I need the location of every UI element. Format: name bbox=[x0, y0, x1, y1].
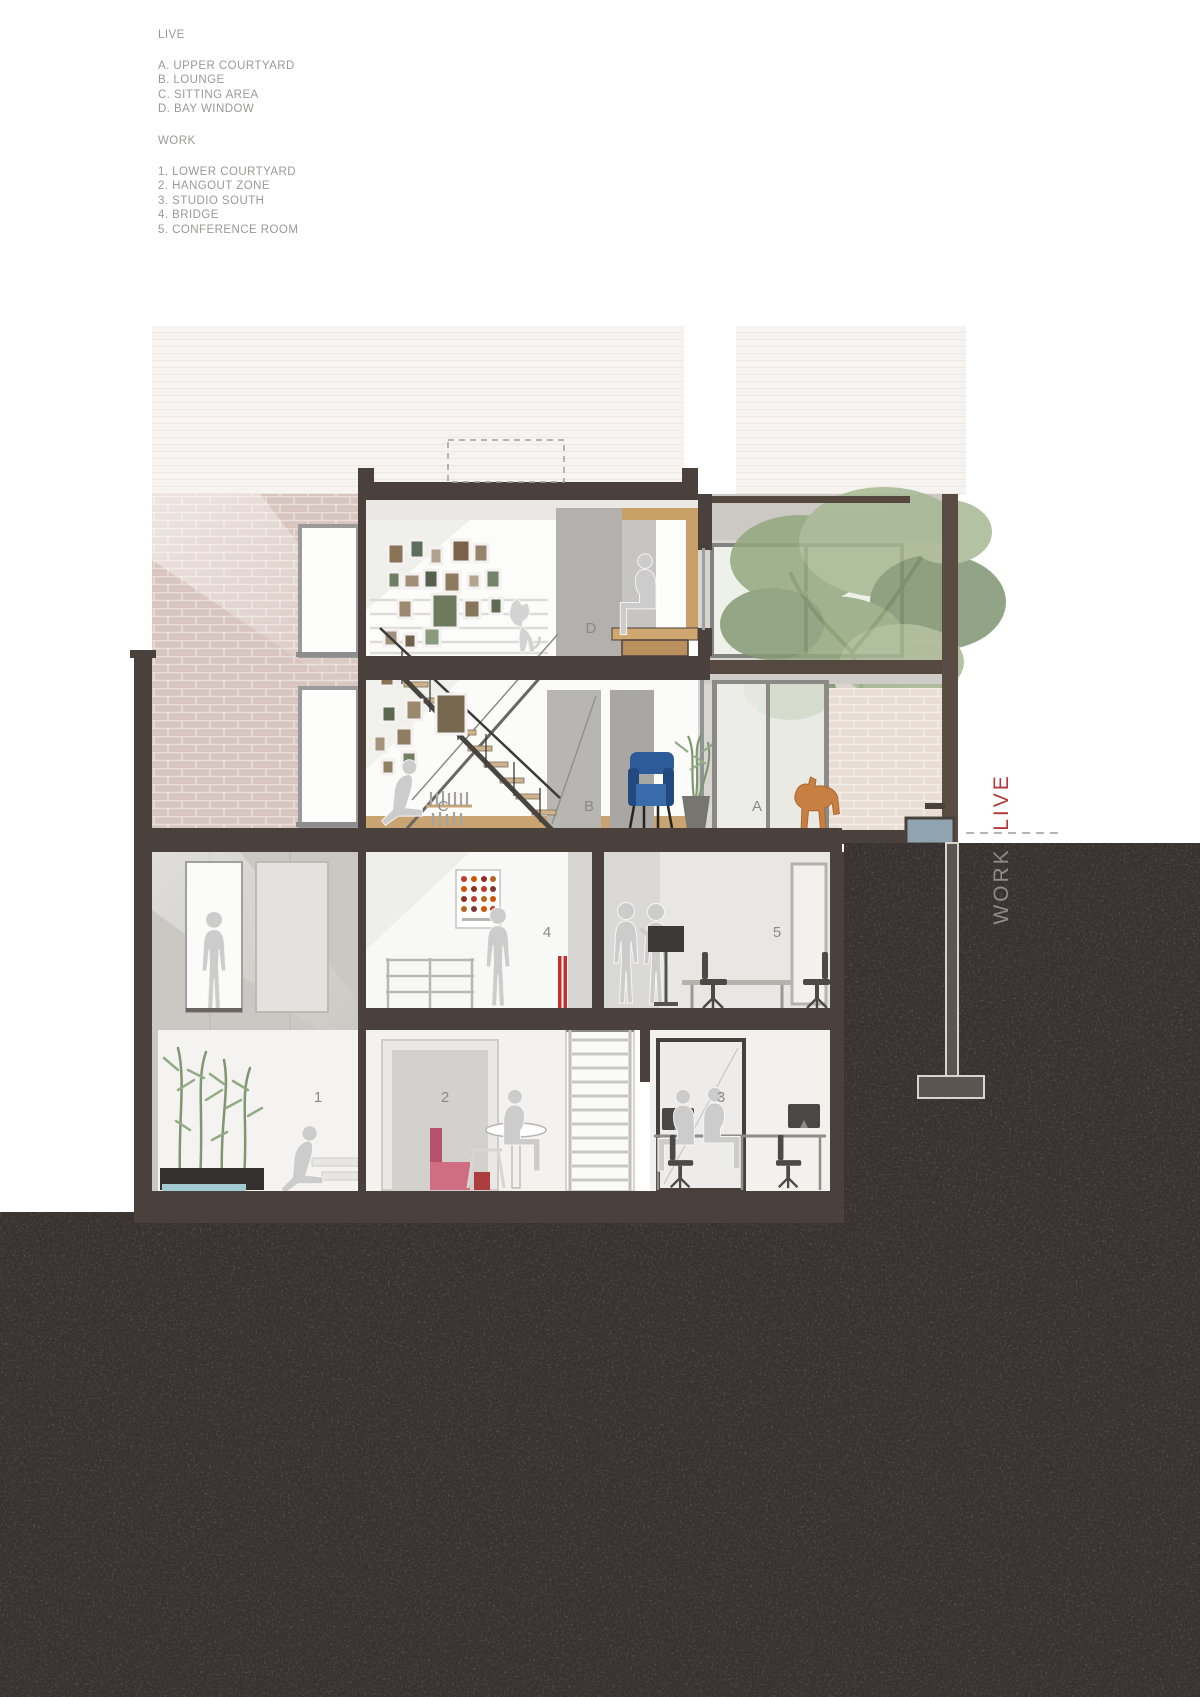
left-window-upper bbox=[296, 526, 362, 657]
left-opening-recess bbox=[256, 862, 328, 1012]
conference-room bbox=[604, 852, 830, 1009]
foundation-slab bbox=[134, 1191, 844, 1223]
left-opening-window bbox=[186, 862, 242, 1012]
label-lower-courtyard: 1 bbox=[314, 1089, 322, 1106]
label-upper-courtyard: A bbox=[752, 798, 762, 815]
axis-label-work: WORK bbox=[990, 847, 1013, 924]
legend-work-title: WORK bbox=[158, 134, 298, 149]
courtyard-doors bbox=[704, 668, 958, 830]
side-table bbox=[474, 1172, 490, 1190]
roof-slab bbox=[358, 482, 698, 500]
lower-courtyard bbox=[158, 1030, 358, 1193]
legend-work-list: 1. LOWER COURTYARD 2. HANGOUT ZONE 3. ST… bbox=[158, 165, 298, 238]
right-basement-wall bbox=[830, 852, 844, 1191]
bridge-slab bbox=[358, 1008, 844, 1030]
legend-item: A. UPPER COURTYARD bbox=[158, 59, 298, 74]
legend-item: 2. HANGOUT ZONE bbox=[158, 179, 298, 194]
section-drawing: LIVE WORK D C B A 4 5 1 2 3 bbox=[0, 0, 1200, 1697]
legend-item: C. SITTING AREA bbox=[158, 88, 298, 103]
legend-item: 4. BRIDGE bbox=[158, 208, 298, 223]
label-hangout-zone: 2 bbox=[441, 1089, 449, 1106]
label-bridge: 4 bbox=[543, 924, 551, 941]
legend-item: 3. STUDIO SOUTH bbox=[158, 194, 298, 209]
architectural-section-page: LIVE A. UPPER COURTYARD B. LOUNGE C. SIT… bbox=[0, 0, 1200, 1697]
studio-south bbox=[650, 1030, 830, 1191]
top-floor bbox=[366, 500, 698, 658]
label-conference-room: 5 bbox=[773, 924, 781, 941]
legend-item: B. LOUNGE bbox=[158, 73, 298, 88]
sofa-seat bbox=[430, 1162, 470, 1190]
lower-level bbox=[366, 1022, 830, 1191]
legend-item: 1. LOWER COURTYARD bbox=[158, 165, 298, 180]
legend-live-title: LIVE bbox=[158, 28, 298, 43]
imac-monitor bbox=[788, 1104, 820, 1128]
legend-item: 5. CONFERENCE ROOM bbox=[158, 223, 298, 238]
background-elevations bbox=[152, 326, 966, 494]
label-sitting-area: C bbox=[438, 798, 449, 815]
vertical-stair bbox=[566, 1022, 634, 1191]
label-bay-window: D bbox=[586, 620, 597, 637]
hangout-zone bbox=[366, 1030, 566, 1191]
legend-item: D. BAY WINDOW bbox=[158, 102, 298, 117]
bridge-conference-wall bbox=[592, 852, 604, 1008]
label-lounge: B bbox=[584, 798, 594, 815]
label-studio-south: 3 bbox=[717, 1089, 725, 1106]
mid-slab bbox=[358, 656, 710, 680]
left-window-lower bbox=[296, 688, 362, 827]
bridge-level bbox=[366, 852, 592, 1008]
axis-label-live: LIVE bbox=[990, 773, 1013, 831]
legend-live-list: A. UPPER COURTYARD B. LOUNGE C. SITTING … bbox=[158, 59, 298, 117]
legend: LIVE A. UPPER COURTYARD B. LOUNGE C. SIT… bbox=[158, 28, 298, 255]
left-retaining-wall bbox=[134, 652, 152, 1197]
boundary-wall bbox=[942, 494, 958, 843]
